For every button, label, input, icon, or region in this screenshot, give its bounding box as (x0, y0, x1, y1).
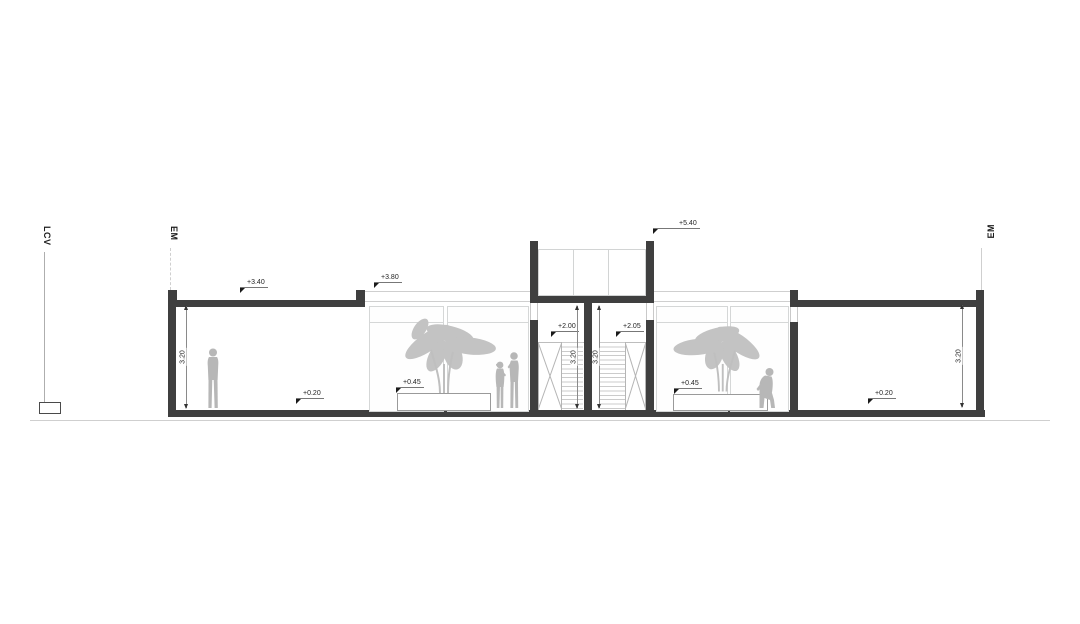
level-marker-roof-left: +3.40 (240, 279, 268, 293)
level-arrow-icon (868, 399, 873, 404)
core-bulkhead-right-wall (646, 241, 654, 303)
level-planter-right-text: +0.45 (674, 380, 702, 389)
dim-arrow-up-icon (960, 304, 964, 309)
label-lcv: LCV (42, 226, 52, 246)
level-arrow-icon (396, 388, 401, 393)
level-arrow-icon (616, 332, 621, 337)
core-bulkhead-slab (530, 296, 654, 303)
dim-arrow-up-icon (597, 305, 601, 310)
core-bulkhead-left-wall (530, 241, 538, 303)
label-em-left: EM (169, 226, 179, 241)
person-talking-left-icon (493, 361, 507, 410)
person-crouching-icon (752, 367, 779, 410)
ground-line (30, 420, 1050, 421)
level-atrium-roof-text: +3.80 (374, 274, 402, 283)
atrium-left-roof-top-line (365, 291, 530, 292)
architectural-section-canvas: LCV EM EM 3.20 +3.40 +0.20 (0, 0, 1080, 624)
level-arrow-icon (296, 399, 301, 404)
dim-stair-left-text: 3.20 (571, 348, 578, 366)
core-right-clerestory (646, 303, 654, 320)
lcv-marker-box (39, 402, 61, 414)
person-talking-right-icon (506, 352, 522, 410)
bulkhead-mullion (608, 250, 609, 295)
core-left-wall (530, 320, 538, 410)
dim-arrow-down-icon (597, 404, 601, 409)
atrium-right-roof-bottom-line (654, 301, 790, 302)
dim-arrow-down-icon (184, 404, 188, 409)
level-marker-floor-right: +0.20 (868, 390, 896, 404)
dim-stair-left: 3.20 (577, 306, 578, 408)
core-central-wall (584, 303, 592, 410)
level-planter-left-text: +0.45 (396, 379, 424, 388)
level-marker-bulkhead-top: +5.40 (653, 220, 700, 234)
right-room-clerestory (790, 307, 798, 322)
level-marker-planter-right: +0.45 (674, 380, 702, 394)
level-marker-stair-left: +2.00 (551, 323, 579, 337)
dim-arrow-down-icon (575, 404, 579, 409)
floor-slab (168, 410, 985, 417)
em-left-text: EM (169, 226, 179, 241)
stair-right-railing-xbrace-icon (625, 342, 646, 410)
dim-room-right: 3.20 (962, 305, 963, 407)
level-arrow-icon (551, 332, 556, 337)
label-em-right: EM (986, 224, 996, 239)
atrium-right-roof-top-line (654, 291, 790, 292)
em-right-line (981, 248, 982, 292)
dim-arrow-down-icon (960, 403, 964, 408)
dim-arrow-up-icon (184, 305, 188, 310)
level-arrow-icon (374, 283, 379, 288)
dim-arrow-up-icon (575, 305, 579, 310)
core-right-wall (646, 320, 654, 410)
level-marker-stair-right: +2.05 (616, 323, 644, 337)
lcv-boundary-line (44, 252, 45, 402)
stair-right-treads (600, 342, 625, 410)
lcv-text: LCV (42, 226, 52, 246)
core-left-clerestory (530, 303, 538, 320)
person-standing-icon (203, 348, 223, 410)
em-right-text: EM (986, 224, 996, 239)
level-marker-floor-left: +0.20 (296, 390, 324, 404)
bulkhead-mullion (573, 250, 574, 295)
dim-room-left: 3.20 (186, 306, 187, 408)
stair-left-railing-xbrace-icon (538, 342, 562, 410)
dim-stair-right-text: 3.20 (593, 348, 600, 366)
core-bulkhead-window (538, 249, 646, 296)
level-stair-left-text: +2.00 (551, 323, 579, 332)
em-left-line (170, 248, 171, 290)
level-stair-right-text: +2.05 (616, 323, 644, 332)
planter-left (397, 393, 491, 411)
right-room-left-wall (790, 322, 798, 410)
level-roof-left-text: +3.40 (240, 279, 268, 288)
level-bulkhead-top-text: +5.40 (653, 220, 700, 229)
left-room-roof-slab (168, 300, 365, 307)
level-marker-planter-left: +0.45 (396, 379, 424, 393)
level-floor-left-text: +0.20 (296, 390, 324, 399)
atrium-left-roof-bottom-line (365, 301, 530, 302)
dim-room-right-text: 3.20 (956, 347, 963, 365)
level-arrow-icon (674, 389, 679, 394)
level-marker-atrium-roof: +3.80 (374, 274, 402, 288)
level-arrow-icon (653, 229, 658, 234)
right-room-right-wall (976, 307, 984, 410)
level-arrow-icon (240, 288, 245, 293)
right-room-roof-slab (790, 300, 984, 307)
left-room-left-wall (168, 307, 176, 410)
dim-stair-right: 3.20 (599, 306, 600, 408)
dim-room-left-text: 3.20 (180, 348, 187, 366)
level-floor-right-text: +0.20 (868, 390, 896, 399)
